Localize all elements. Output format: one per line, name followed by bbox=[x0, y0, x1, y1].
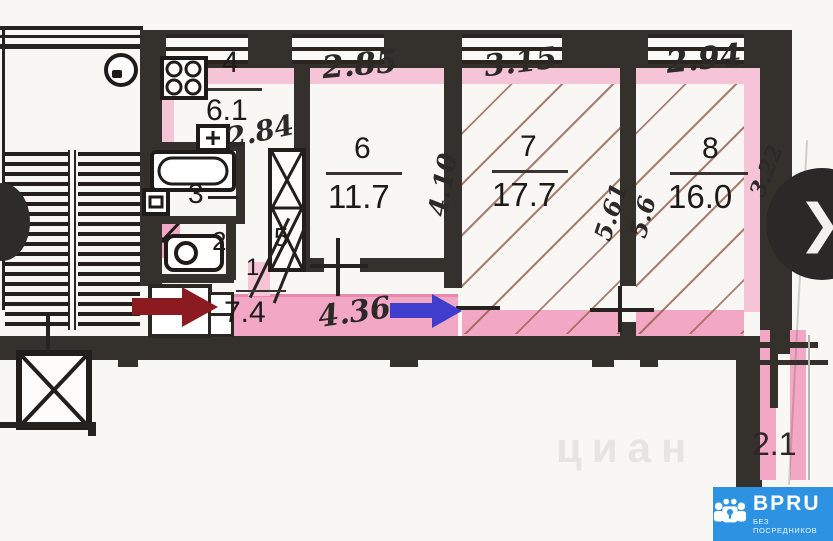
room8-area: 16.0 bbox=[668, 180, 732, 213]
door-mark-room8-v bbox=[618, 286, 622, 332]
stairwell-outer-line bbox=[0, 44, 143, 49]
hallway-number: 1 bbox=[246, 256, 259, 280]
brand-tagline: БЕЗ ПОСРЕДНИКОВ bbox=[753, 517, 833, 535]
stove-icon bbox=[160, 56, 208, 100]
balcony-rail-h2 bbox=[736, 360, 828, 365]
stair-divider-line bbox=[74, 150, 76, 330]
brand-name: BPRU bbox=[753, 493, 821, 514]
room6-number: 6 bbox=[354, 134, 371, 164]
wall-room7-room8-stub bbox=[620, 322, 636, 336]
door-mark-hall-h bbox=[310, 264, 368, 268]
brand-people-lock-icon bbox=[713, 497, 747, 532]
chevron-right-icon: ❯ bbox=[798, 198, 833, 250]
closet-icon bbox=[268, 148, 306, 272]
hallway-area: 7.4 bbox=[224, 298, 266, 328]
dim-room6-width: 2.85 bbox=[321, 47, 399, 84]
wall-wc-right bbox=[226, 216, 236, 280]
lower-lobby-line bbox=[0, 422, 96, 428]
dim-room8-width: 2.94 bbox=[665, 40, 743, 79]
wall-bath-wc bbox=[144, 216, 236, 224]
elevator-axis-line bbox=[46, 316, 50, 352]
room6-area: 11.7 bbox=[328, 180, 390, 213]
kitchen-divider-line bbox=[208, 88, 262, 91]
floor-plan-photo: 4 6.1 3 2 5 1 7.4 6 11.7 7 17.7 8 16.0 2… bbox=[0, 0, 833, 541]
door-mark-bath bbox=[208, 196, 238, 199]
room7-divider-line bbox=[492, 170, 568, 173]
wc-number: 2 bbox=[212, 228, 226, 254]
balcony-area: 2.1 bbox=[752, 428, 796, 460]
brand-badge[interactable]: BPRU БЕЗ ПОСРЕДНИКОВ bbox=[713, 487, 833, 541]
stair-divider-line bbox=[68, 150, 70, 330]
wall-notch bbox=[118, 360, 138, 367]
wall-wc-bottom bbox=[144, 274, 234, 283]
room8-number: 8 bbox=[702, 134, 719, 164]
stairwell-outer-line bbox=[0, 26, 143, 30]
wall-notch bbox=[592, 360, 614, 367]
wall-room7-room8 bbox=[620, 64, 636, 286]
room7-number: 7 bbox=[520, 132, 537, 162]
kitchen-number: 4 bbox=[222, 48, 239, 78]
closet-number: 5 bbox=[274, 224, 288, 250]
bathroom-number: 3 bbox=[188, 180, 204, 208]
wall-corridor-top-b bbox=[360, 258, 446, 272]
wall-bottom bbox=[0, 336, 762, 360]
room6-divider-line bbox=[326, 172, 402, 175]
bath-sink-icon bbox=[142, 188, 170, 216]
room7-area: 17.7 bbox=[492, 178, 556, 211]
lower-lobby-notch bbox=[88, 428, 96, 436]
balcony-edge-line bbox=[808, 335, 810, 480]
door-mark-room8-h bbox=[590, 308, 654, 312]
dim-room7-width: 3.15 bbox=[482, 44, 558, 83]
wall-bath-right bbox=[236, 142, 245, 224]
wall-notch bbox=[390, 360, 418, 367]
hallway-divider-line bbox=[236, 290, 286, 292]
watermark-text: циан bbox=[556, 424, 696, 472]
wall-notch bbox=[640, 360, 658, 367]
balcony-rail-v bbox=[770, 330, 778, 408]
wall-balcony-side bbox=[736, 352, 762, 488]
stairwell-outer-line bbox=[0, 35, 143, 38]
balcony-rail-h1 bbox=[740, 342, 818, 348]
blue-arrow-marker bbox=[388, 292, 464, 330]
garbage-chute-dot bbox=[112, 70, 122, 78]
room8-divider-line bbox=[670, 172, 748, 175]
elevator-shaft-icon bbox=[16, 350, 92, 430]
red-arrow-marker bbox=[130, 286, 220, 328]
